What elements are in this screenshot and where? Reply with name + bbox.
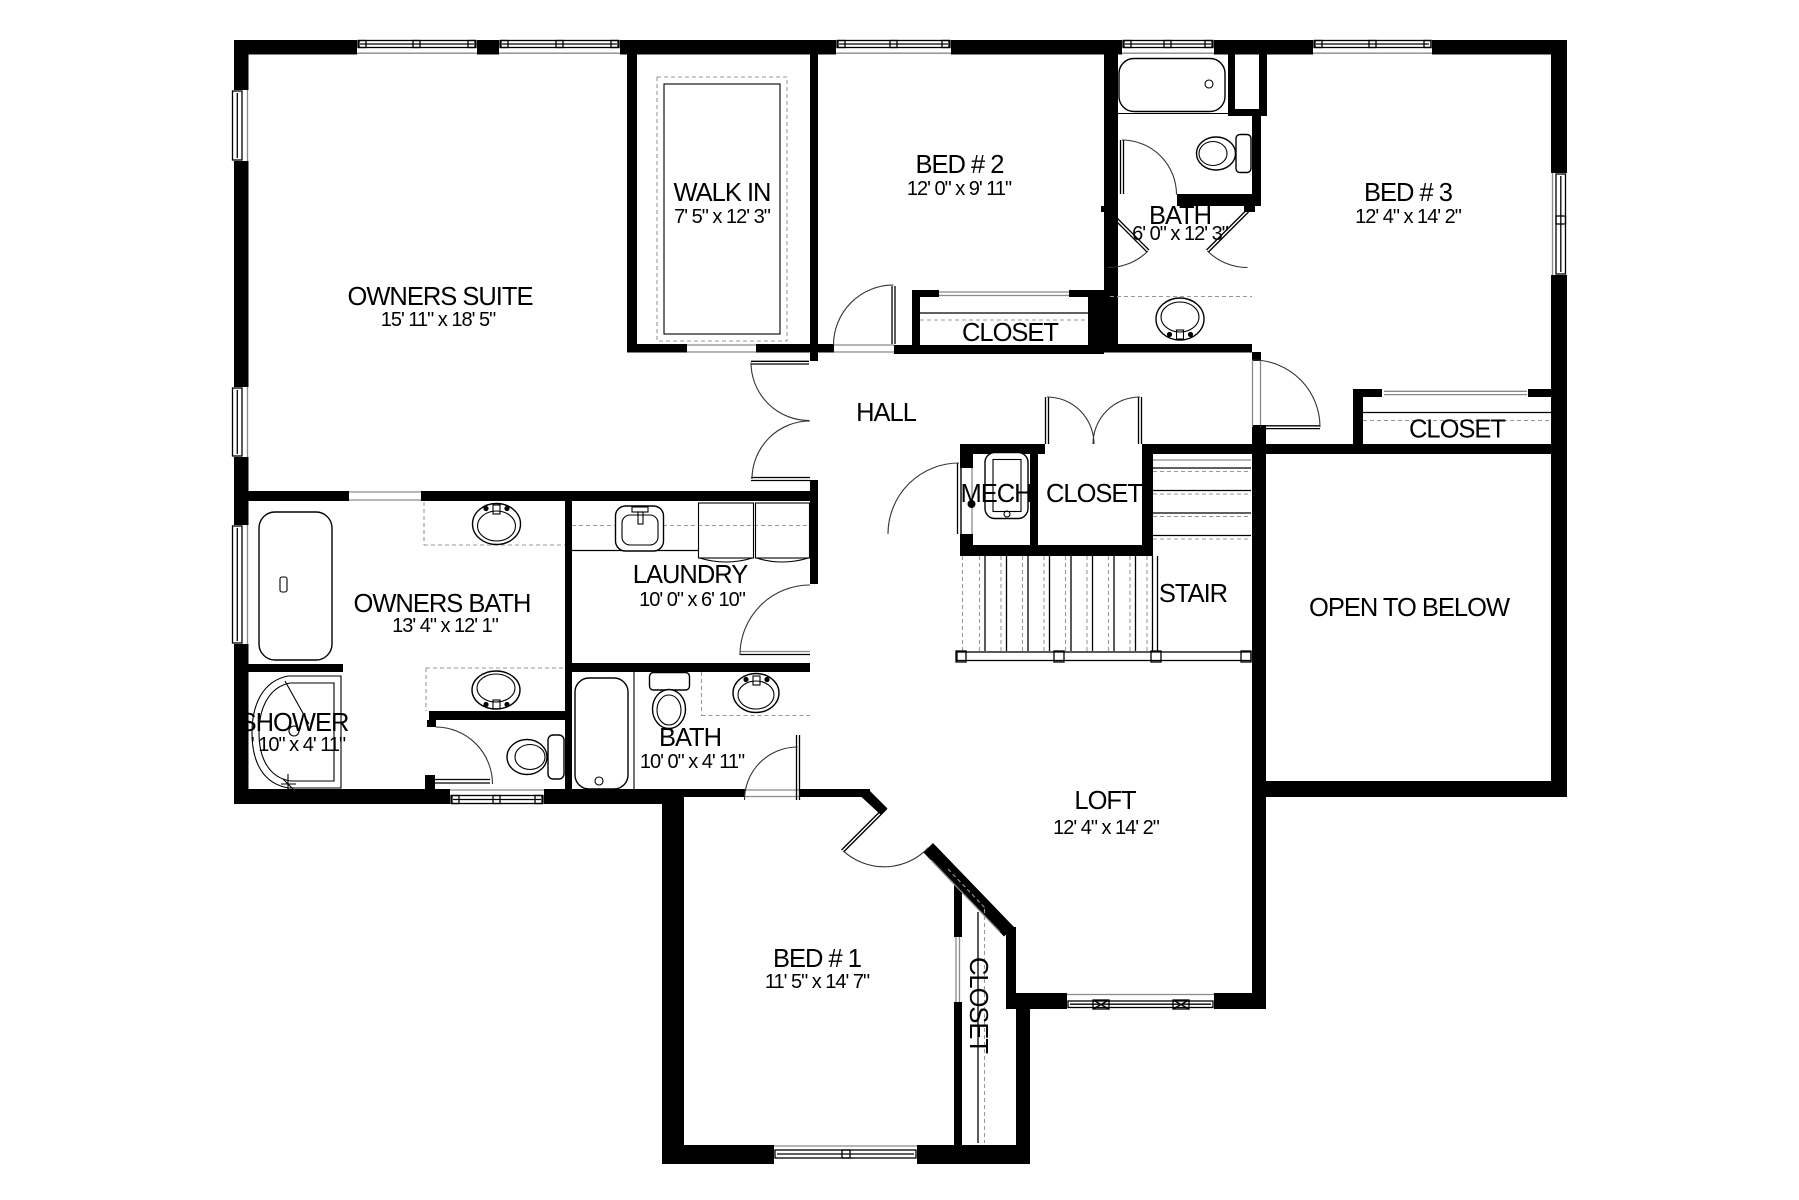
- svg-text:10' 0" x 4' 11": 10' 0" x 4' 11": [640, 751, 745, 773]
- svg-text:13' 4" x 12' 1": 13' 4" x 12' 1": [392, 615, 499, 637]
- svg-text:SHOWER: SHOWER: [240, 709, 349, 737]
- svg-text:BED # 3: BED # 3: [1364, 179, 1453, 207]
- svg-text:11' 5" x 14' 7": 11' 5" x 14' 7": [765, 971, 870, 993]
- svg-text:CLOSET: CLOSET: [962, 319, 1058, 347]
- svg-text:OPEN TO BELOW: OPEN TO BELOW: [1309, 594, 1510, 622]
- svg-text:OWNERS BATH: OWNERS BATH: [354, 590, 531, 618]
- svg-text:HALL: HALL: [856, 399, 917, 427]
- svg-text:LAUNDRY: LAUNDRY: [633, 561, 748, 589]
- svg-text:12' 4" x 14' 2": 12' 4" x 14' 2": [1355, 206, 1462, 228]
- svg-text:7' 5" x 12' 3": 7' 5" x 12' 3": [674, 206, 771, 228]
- svg-text:MECH: MECH: [960, 480, 1031, 508]
- svg-text:12' 0" x 9' 11": 12' 0" x 9' 11": [907, 178, 1012, 200]
- svg-text:CLOSET: CLOSET: [1409, 416, 1505, 444]
- svg-text:STAIR: STAIR: [1159, 580, 1228, 608]
- svg-text:BATH: BATH: [659, 724, 721, 752]
- svg-text:BED # 2: BED # 2: [916, 151, 1004, 179]
- svg-text:' 10" x 4' 11": ' 10" x 4' 11": [251, 734, 346, 756]
- svg-text:WALK IN: WALK IN: [674, 179, 771, 207]
- svg-text:12' 4" x 14' 2": 12' 4" x 14' 2": [1053, 817, 1160, 839]
- svg-text:CLOSET: CLOSET: [1046, 480, 1142, 508]
- svg-text:10' 0" x 6' 10": 10' 0" x 6' 10": [639, 589, 746, 611]
- svg-text:15' 11" x 18' 5": 15' 11" x 18' 5": [381, 309, 496, 331]
- svg-text:6' 0" x 12' 3": 6' 0" x 12' 3": [1132, 223, 1229, 245]
- svg-text:BED # 1: BED # 1: [773, 945, 861, 973]
- svg-text:LOFT: LOFT: [1074, 787, 1136, 815]
- svg-text:CLOSET: CLOSET: [964, 957, 992, 1053]
- svg-text:OWNERS SUITE: OWNERS SUITE: [348, 283, 533, 311]
